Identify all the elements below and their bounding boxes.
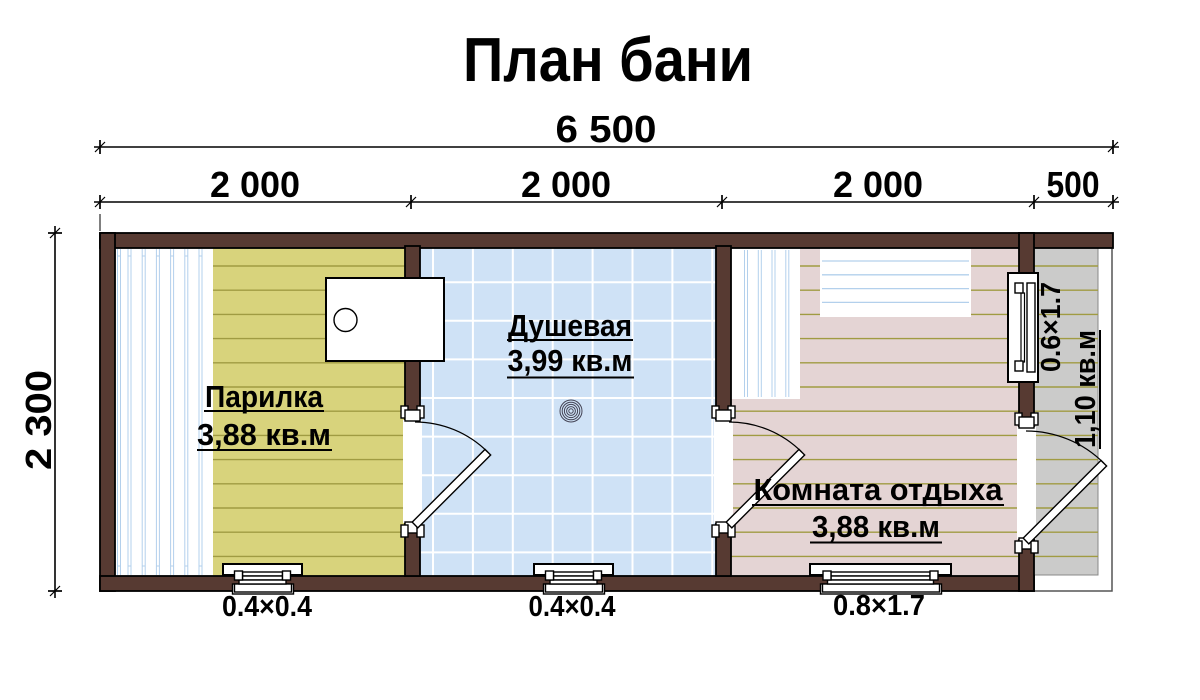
svg-text:3,99 кв.м: 3,99 кв.м	[508, 343, 633, 378]
svg-text:3,88 кв.м: 3,88 кв.м	[197, 417, 331, 452]
svg-text:2 000: 2 000	[521, 164, 611, 205]
svg-text:2 000: 2 000	[833, 164, 923, 205]
svg-text:Комната отдыха: Комната отдыха	[754, 472, 1004, 507]
svg-text:6 500: 6 500	[556, 109, 657, 151]
svg-text:500: 500	[1047, 164, 1100, 205]
svg-text:3,88 кв.м: 3,88 кв.м	[812, 509, 940, 544]
svg-text:2 300: 2 300	[18, 370, 59, 470]
svg-text:2 000: 2 000	[210, 164, 300, 205]
svg-text:План бани: План бани	[463, 26, 753, 95]
svg-text:Душевая: Душевая	[508, 308, 632, 343]
svg-text:0.6×1.7: 0.6×1.7	[1035, 282, 1066, 372]
svg-text:0.8×1.7: 0.8×1.7	[833, 590, 925, 622]
svg-text:1,10 кв.м: 1,10 кв.м	[1070, 330, 1102, 448]
svg-text:Парилка: Парилка	[205, 379, 324, 414]
svg-text:0.4×0.4: 0.4×0.4	[529, 591, 616, 623]
svg-text:0.4×0.4: 0.4×0.4	[222, 591, 312, 623]
